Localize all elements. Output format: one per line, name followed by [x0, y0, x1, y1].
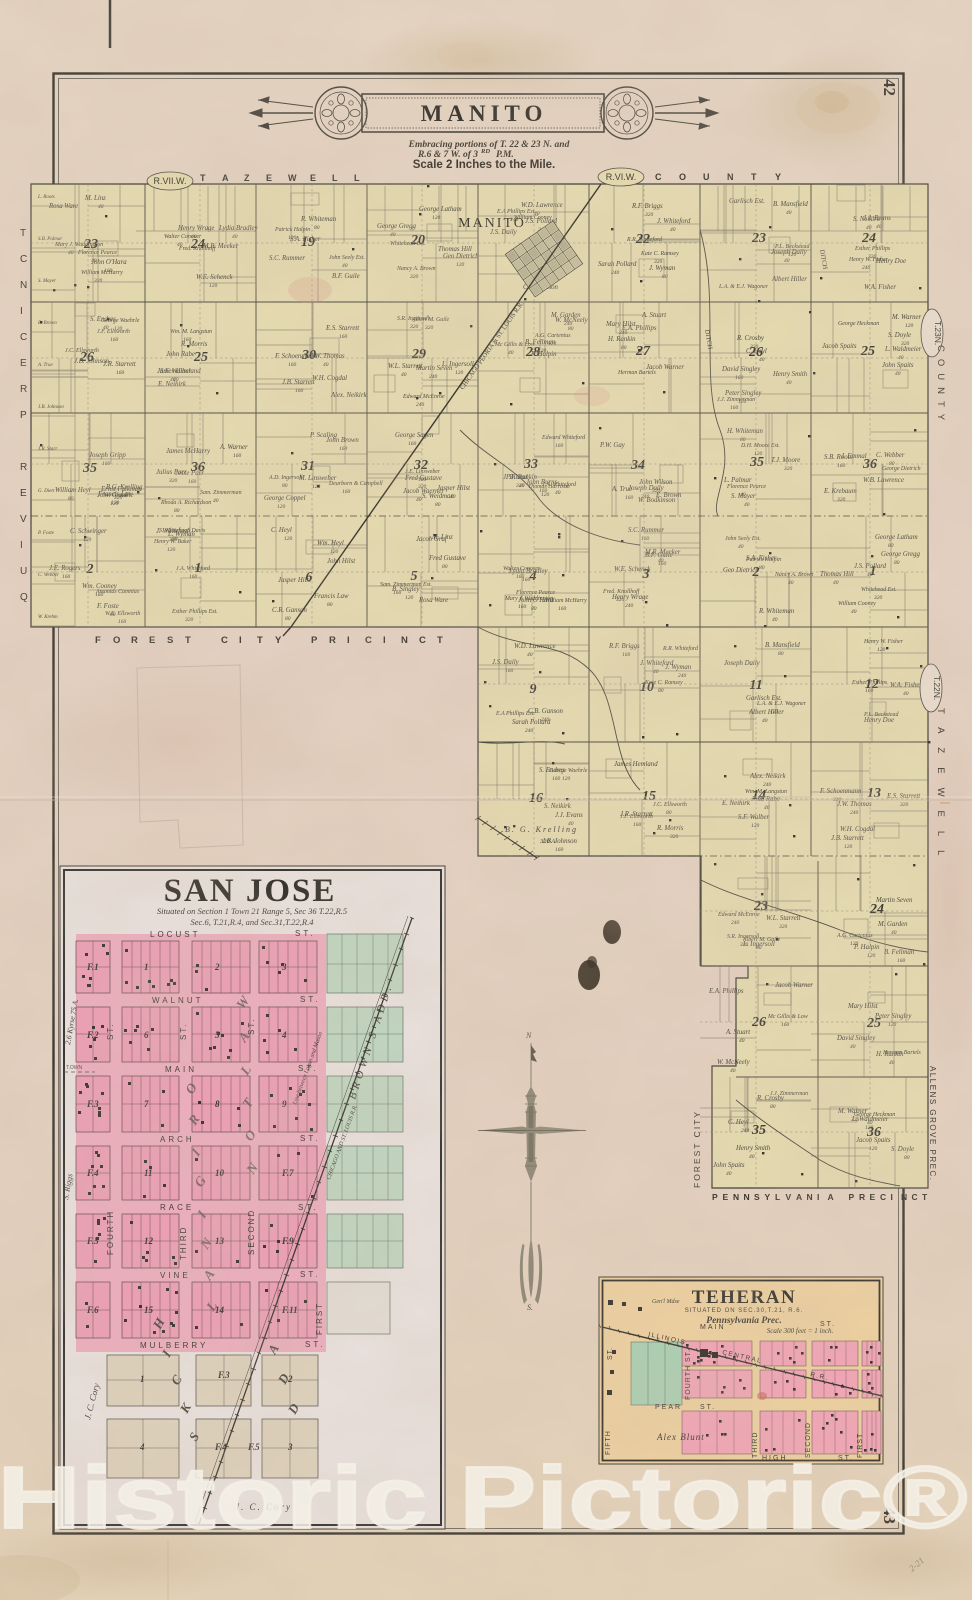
svg-text:Historic Pictoric®: Historic Pictoric® — [0, 1448, 968, 1547]
